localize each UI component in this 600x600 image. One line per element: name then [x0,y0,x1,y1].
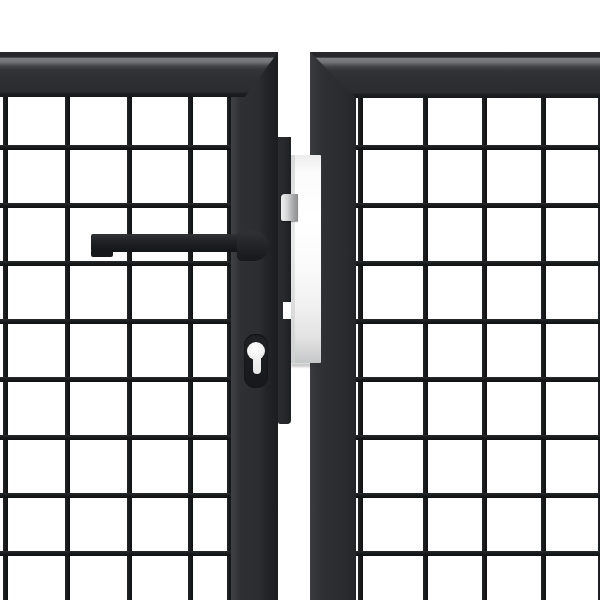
gate-product-photo [0,0,600,600]
latch-bolt-icon [281,194,298,221]
keyhole-slot [253,357,261,374]
right-mesh-wire-horizontal [356,551,600,556]
right-mesh-wire-vertical [541,98,546,600]
left-mesh-wire-horizontal [0,145,236,150]
left-mesh-wire-horizontal [0,319,236,324]
right-mesh-wire-horizontal [356,319,600,324]
handle-bar [91,234,252,252]
lock-bar-gap [283,302,291,319]
right-mesh-wire-horizontal [356,377,600,382]
lock-plate-shadow [291,363,321,367]
right-mesh-wire-vertical [482,98,487,600]
left-mesh-wire-vertical [188,97,193,600]
right-mesh-wire-vertical [423,98,428,600]
left-mesh-wire-horizontal [0,203,236,208]
right-mesh-wire-horizontal [356,261,600,266]
right-mesh-wire-horizontal [356,435,600,440]
lock-plate-edge [291,155,295,363]
left-mesh-panel [0,97,236,600]
handle-grip-lip [91,251,113,257]
left-meeting-stile [231,52,278,600]
left-mesh-wire-horizontal [0,493,236,498]
left-mesh-wire-vertical [127,97,132,600]
left-mesh-wire-horizontal [0,377,236,382]
right-mesh-panel [356,98,600,600]
left-mesh-wire-vertical [3,97,8,600]
right-mesh-wire-horizontal [356,145,600,150]
right-mesh-wire-horizontal [356,493,600,498]
left-mesh-wire-vertical [65,97,70,600]
right-mesh-wire-vertical [358,98,363,600]
lock-keep-plate [291,155,321,363]
lock-housing-bar [278,137,291,424]
left-mesh-wire-horizontal [0,261,236,266]
left-mesh-wire-horizontal [0,551,236,556]
right-mesh-wire-horizontal [356,203,600,208]
right-top-rail [310,52,600,98]
handle-neck [237,231,269,261]
left-mesh-wire-horizontal [0,435,236,440]
left-top-rail [0,52,278,97]
